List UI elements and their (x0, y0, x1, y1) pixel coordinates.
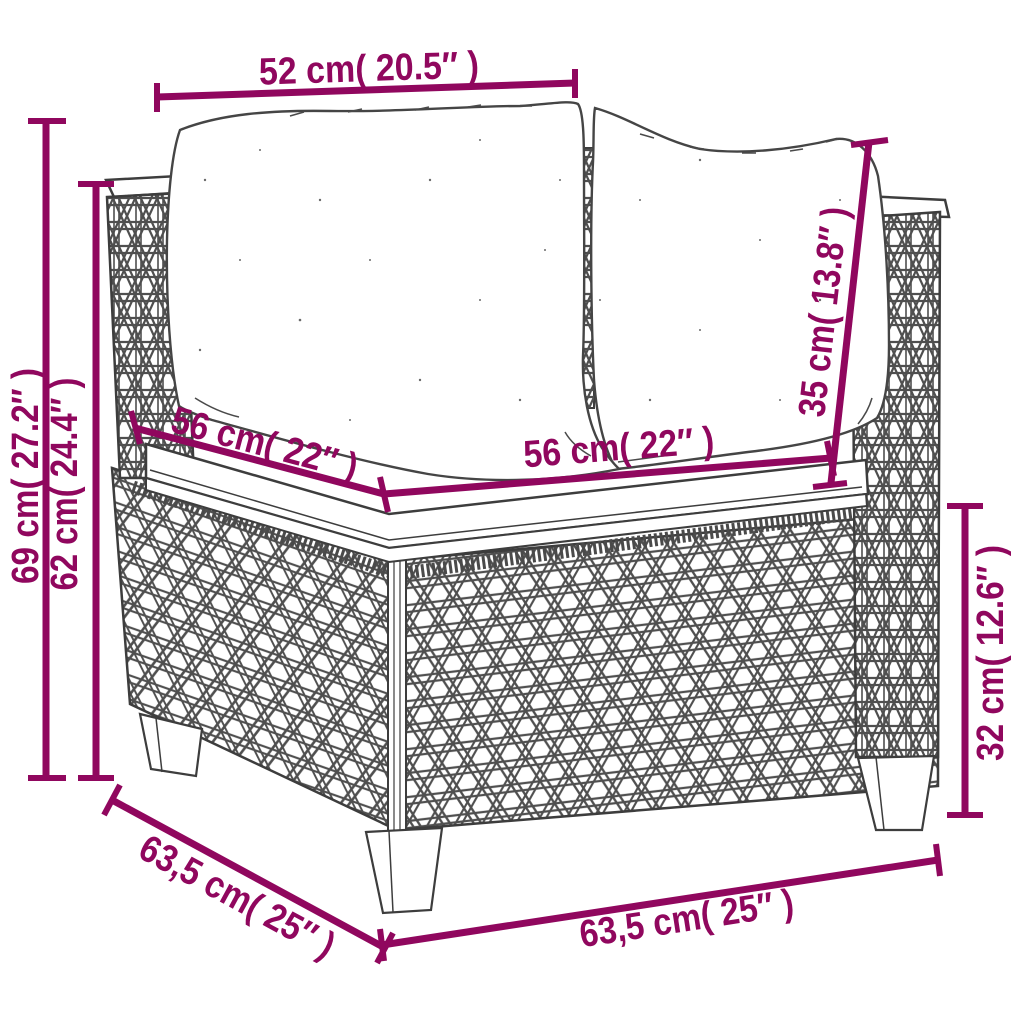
svg-text:69 cm( 27.2″ ): 69 cm( 27.2″ ) (5, 368, 47, 584)
svg-text:32 cm( 12.6″ ): 32 cm( 12.6″ ) (970, 545, 1012, 761)
svg-text:62 cm( 24.4″ ): 62 cm( 24.4″ ) (44, 378, 86, 591)
svg-text:52 cm( 20.5″ ): 52 cm( 20.5″ ) (258, 44, 479, 93)
